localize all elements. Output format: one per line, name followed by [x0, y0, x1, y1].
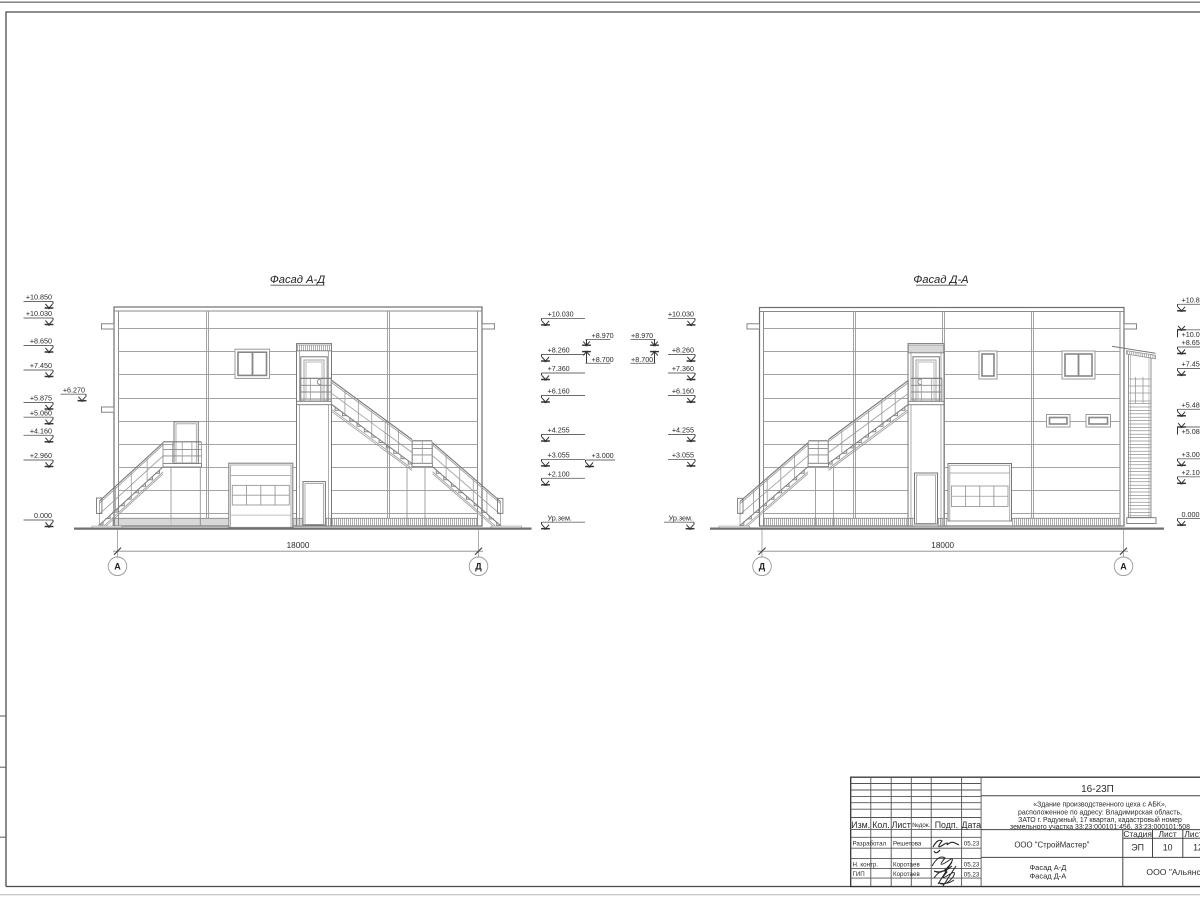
svg-text:+10.030: +10.030 [548, 310, 574, 319]
svg-text:А: А [1120, 562, 1127, 572]
svg-text:+6.270: +6.270 [63, 385, 85, 394]
svg-text:Стадия: Стадия [1123, 829, 1152, 839]
svg-text:05.23: 05.23 [964, 862, 980, 869]
svg-text:Лист: Лист [892, 820, 911, 830]
svg-text:Коротаев: Коротаев [893, 871, 920, 878]
svg-text:+7.450: +7.450 [1182, 360, 1200, 369]
svg-text:+2.100: +2.100 [548, 470, 570, 479]
svg-text:Д: Д [759, 562, 766, 572]
svg-text:«Здание производственного цеха: «Здание производственного цеха с АБК», [1033, 802, 1166, 809]
svg-text:+7.360: +7.360 [672, 364, 694, 373]
svg-text:18000: 18000 [287, 541, 310, 550]
svg-text:Разработал: Разработал [853, 841, 887, 848]
svg-text:+5.080: +5.080 [1182, 427, 1200, 436]
svg-text:+8.650: +8.650 [1182, 338, 1200, 347]
svg-text:+5.480: +5.480 [1182, 401, 1200, 410]
svg-text:+8.970: +8.970 [631, 331, 653, 340]
svg-text:Ур.зем.: Ур.зем. [669, 513, 693, 522]
svg-text:+6.160: +6.160 [548, 387, 570, 396]
svg-text:Фасад Д-А: Фасад Д-А [913, 274, 968, 286]
svg-text:Фасад Д-А: Фасад Д-А [1029, 871, 1066, 880]
svg-text:ЭП: ЭП [1131, 842, 1144, 852]
svg-text:+5.060: +5.060 [30, 408, 52, 417]
svg-text:+8.970: +8.970 [592, 331, 614, 340]
svg-text:+3.000: +3.000 [592, 451, 614, 460]
svg-text:+8.260: +8.260 [672, 346, 694, 355]
svg-text:10: 10 [1163, 842, 1173, 852]
svg-text:+3.000: +3.000 [1182, 450, 1200, 459]
svg-text:Изм.: Изм. [851, 820, 870, 830]
svg-text:16-23П: 16-23П [1081, 784, 1114, 795]
svg-text:ЗАТО г. Радужный, 17 квартал,: ЗАТО г. Радужный, 17 квартал, кадастровы… [1018, 816, 1182, 824]
svg-text:ГИП: ГИП [853, 871, 865, 878]
svg-text:Кол.: Кол. [872, 820, 889, 830]
svg-text:+7.450: +7.450 [30, 361, 52, 370]
svg-text:А: А [114, 562, 121, 572]
svg-text:+8.650: +8.650 [30, 337, 52, 346]
svg-text:Дата: Дата [962, 820, 982, 830]
svg-text:+10.030: +10.030 [668, 310, 694, 319]
svg-text:Лист: Лист [1158, 829, 1176, 839]
svg-text:+8.260: +8.260 [548, 346, 570, 355]
svg-text:+10.850: +10.850 [26, 293, 52, 302]
svg-text:0.000: 0.000 [1182, 510, 1200, 519]
svg-text:05.23: 05.23 [964, 841, 980, 848]
svg-text:+4.255: +4.255 [672, 426, 694, 435]
svg-text:+6.160: +6.160 [672, 387, 694, 396]
svg-text:Фасад А-Д: Фасад А-Д [270, 274, 325, 286]
svg-text:+3.055: +3.055 [548, 451, 570, 460]
svg-text:Подп.: Подп. [935, 820, 958, 830]
svg-text:+7.360: +7.360 [548, 364, 570, 373]
svg-text:Ур.зем.: Ур.зем. [548, 513, 572, 522]
svg-text:Н. контр.: Н. контр. [853, 861, 879, 868]
svg-text:18000: 18000 [931, 541, 954, 550]
svg-text:05.23: 05.23 [964, 871, 980, 878]
svg-text:+2.960: +2.960 [30, 451, 52, 460]
svg-text:+3.055: +3.055 [672, 451, 694, 460]
svg-text:+10.850: +10.850 [1182, 296, 1200, 305]
svg-text:расположенное по адресу: Влади: расположенное по адресу: Владимирская об… [1018, 808, 1182, 816]
svg-text:Коротаев: Коротаев [893, 861, 920, 868]
svg-text:ООО "СтройМастер": ООО "СтройМастер" [1014, 840, 1089, 849]
svg-text:0.000: 0.000 [34, 511, 52, 520]
svg-text:Решетова: Решетова [893, 841, 922, 848]
svg-text:+4.255: +4.255 [548, 426, 570, 435]
svg-text:ООО "Альянс": ООО "Альянс" [1146, 867, 1200, 877]
svg-text:12: 12 [1193, 842, 1200, 852]
svg-text:№док.: №док. [912, 822, 930, 829]
svg-text:Д: Д [475, 562, 482, 572]
svg-text:+10.030: +10.030 [26, 309, 52, 318]
svg-text:+4.160: +4.160 [30, 427, 52, 436]
svg-text:Листов: Листов [1184, 829, 1200, 839]
svg-text:+2.100: +2.100 [1182, 468, 1200, 477]
svg-text:+5.875: +5.875 [30, 394, 52, 403]
